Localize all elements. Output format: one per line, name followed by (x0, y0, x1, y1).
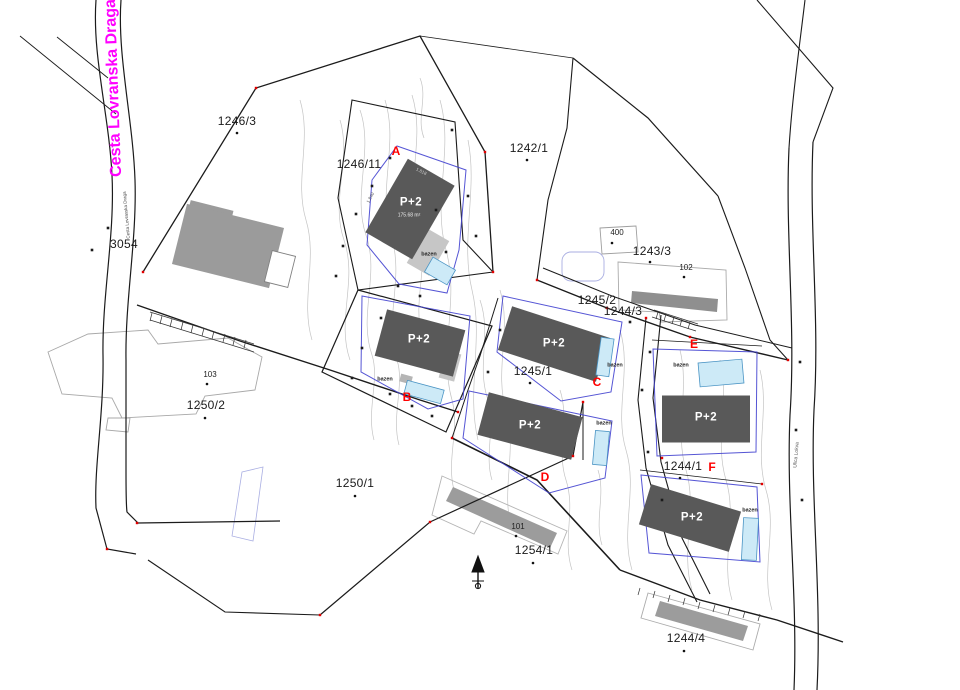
house-1250-2-outline (48, 330, 262, 418)
pool-a-label: bazen (421, 252, 437, 258)
building-label-102: 102 (679, 264, 692, 272)
pool-d-label: bazen (596, 421, 612, 427)
road-right-west-edge (788, 148, 795, 690)
parcel-label-1243-3: 1243/3 (633, 245, 672, 257)
building-b-floors-label: P+2 (408, 334, 430, 346)
unit-marker-c: C (593, 376, 602, 388)
building-label-103: 103 (203, 371, 216, 379)
pool-c-label: bazen (607, 363, 623, 369)
parcel-label-1254-1: 1254/1 (515, 544, 554, 556)
parcel-label-1244-1: 1244/1 (664, 460, 703, 472)
parcel-label-1244-3: 1244/3 (604, 305, 643, 317)
building-label-400: 400 (610, 229, 623, 237)
pool-d (593, 430, 610, 465)
parcel-dots (204, 132, 686, 653)
road-right-east-edge (812, 142, 818, 690)
map-linework (0, 0, 960, 690)
building-a-area-label: 175.68 m² (398, 214, 421, 219)
cadastral-site-plan: Cesta Lovranska Draga Cesta Lovranska Dr… (0, 0, 960, 690)
building-101-roof (446, 487, 557, 548)
parcel-label-1250-1: 1250/1 (336, 477, 375, 489)
unit-marker-b: B (403, 391, 412, 403)
building-e-floors-label: P+2 (695, 412, 717, 424)
parcel-label-1244-4: 1244/4 (667, 632, 706, 644)
unit-marker-a: A (392, 145, 401, 157)
building-d-floors-label: P+2 (519, 420, 541, 432)
building-c-floors-label: P+2 (543, 338, 565, 350)
parcel-label-1246-3: 1246/3 (218, 115, 257, 127)
pond-outline (562, 252, 604, 281)
planned-buildings (365, 159, 750, 552)
parcel-label-1246-11: 1246/11 (337, 158, 382, 170)
building-label-101: 101 (511, 523, 524, 531)
pool-b-label: bazen (377, 377, 393, 383)
unit-marker-d: D (541, 471, 550, 483)
building-f-floors-label: P+2 (681, 512, 703, 524)
pool-e (698, 359, 744, 387)
building-102-roof (631, 291, 718, 312)
unit-marker-e: E (690, 338, 698, 350)
pool-e-label: bazen (673, 363, 689, 369)
unit-marker-f: F (708, 461, 715, 473)
parcel-label-1242-1: 1242/1 (510, 142, 549, 154)
building-a-floors-label: P+2 (400, 197, 422, 209)
parcel-label-3054: 3054 (110, 238, 138, 250)
parcel-label-1250-2: 1250/2 (187, 399, 226, 411)
pool-f-label: bazen (742, 508, 758, 514)
pool-f (741, 518, 758, 561)
north-arrow-icon (472, 556, 484, 589)
parcel-label-1245-1: 1245/1 (514, 365, 553, 377)
